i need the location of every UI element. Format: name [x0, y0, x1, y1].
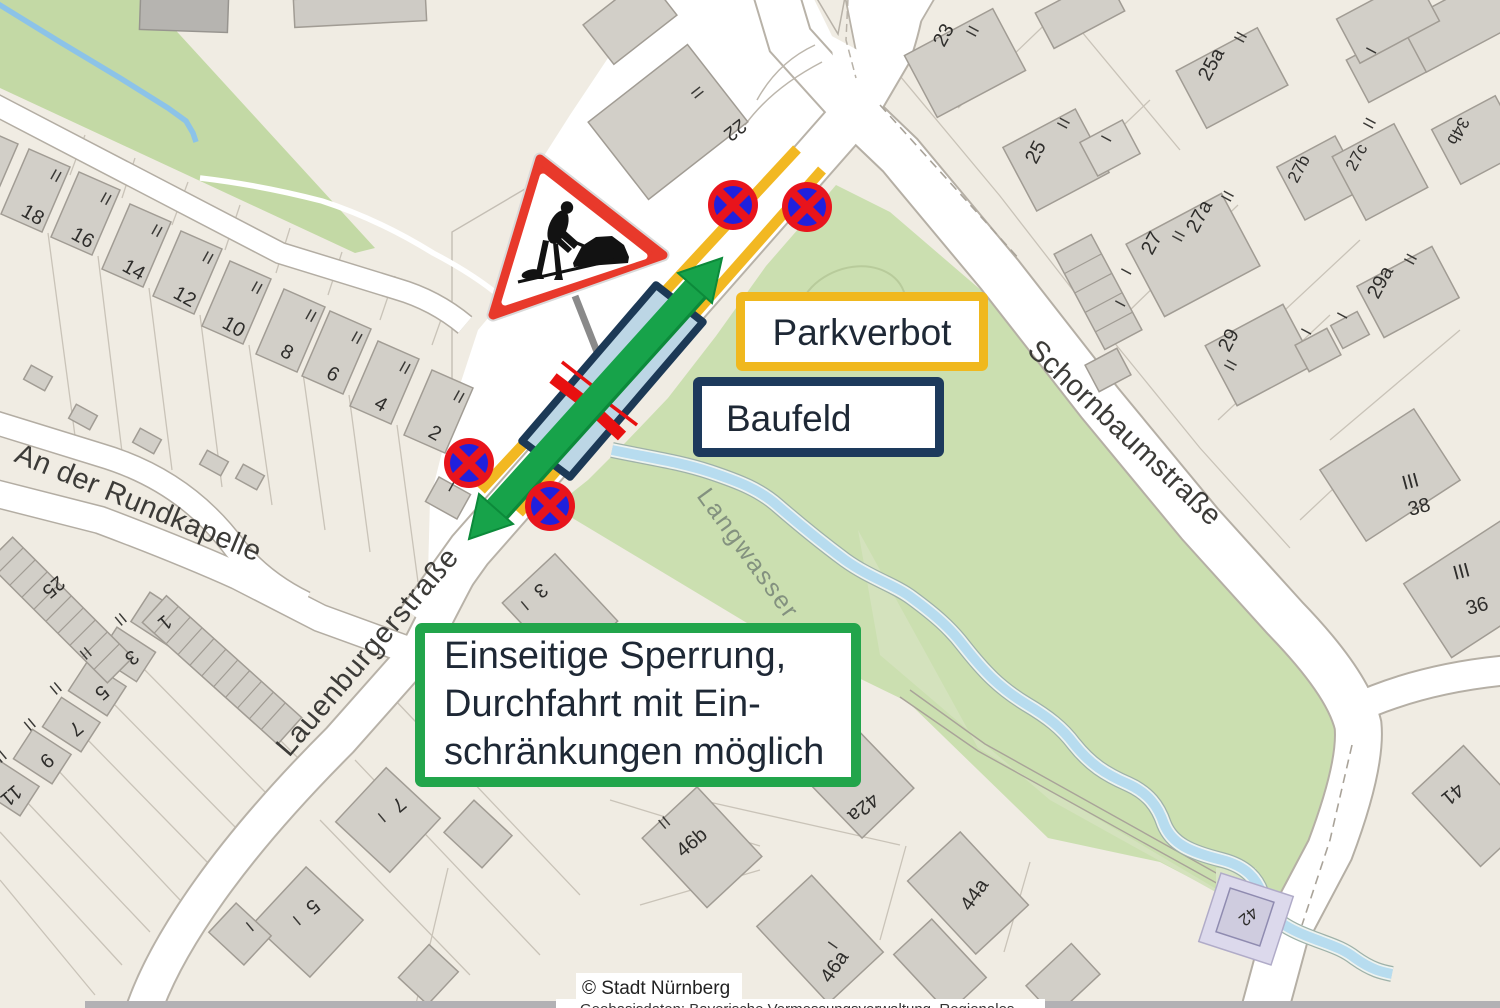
svg-text:Parkverbot: Parkverbot [773, 312, 953, 353]
svg-text:Durchfahrt mit Ein-: Durchfahrt mit Ein- [444, 683, 761, 725]
svg-text:© Stadt Nürnberg: © Stadt Nürnberg [582, 978, 730, 999]
svg-text:schränkungen möglich: schränkungen möglich [444, 731, 824, 773]
svg-text:Geobasisdaten: Bayerische Verm: Geobasisdaten: Bayerische Vermessungsver… [580, 1001, 1014, 1008]
svg-text:Baufeld: Baufeld [726, 398, 852, 439]
svg-text:Einseitige Sperrung,: Einseitige Sperrung, [444, 635, 786, 677]
